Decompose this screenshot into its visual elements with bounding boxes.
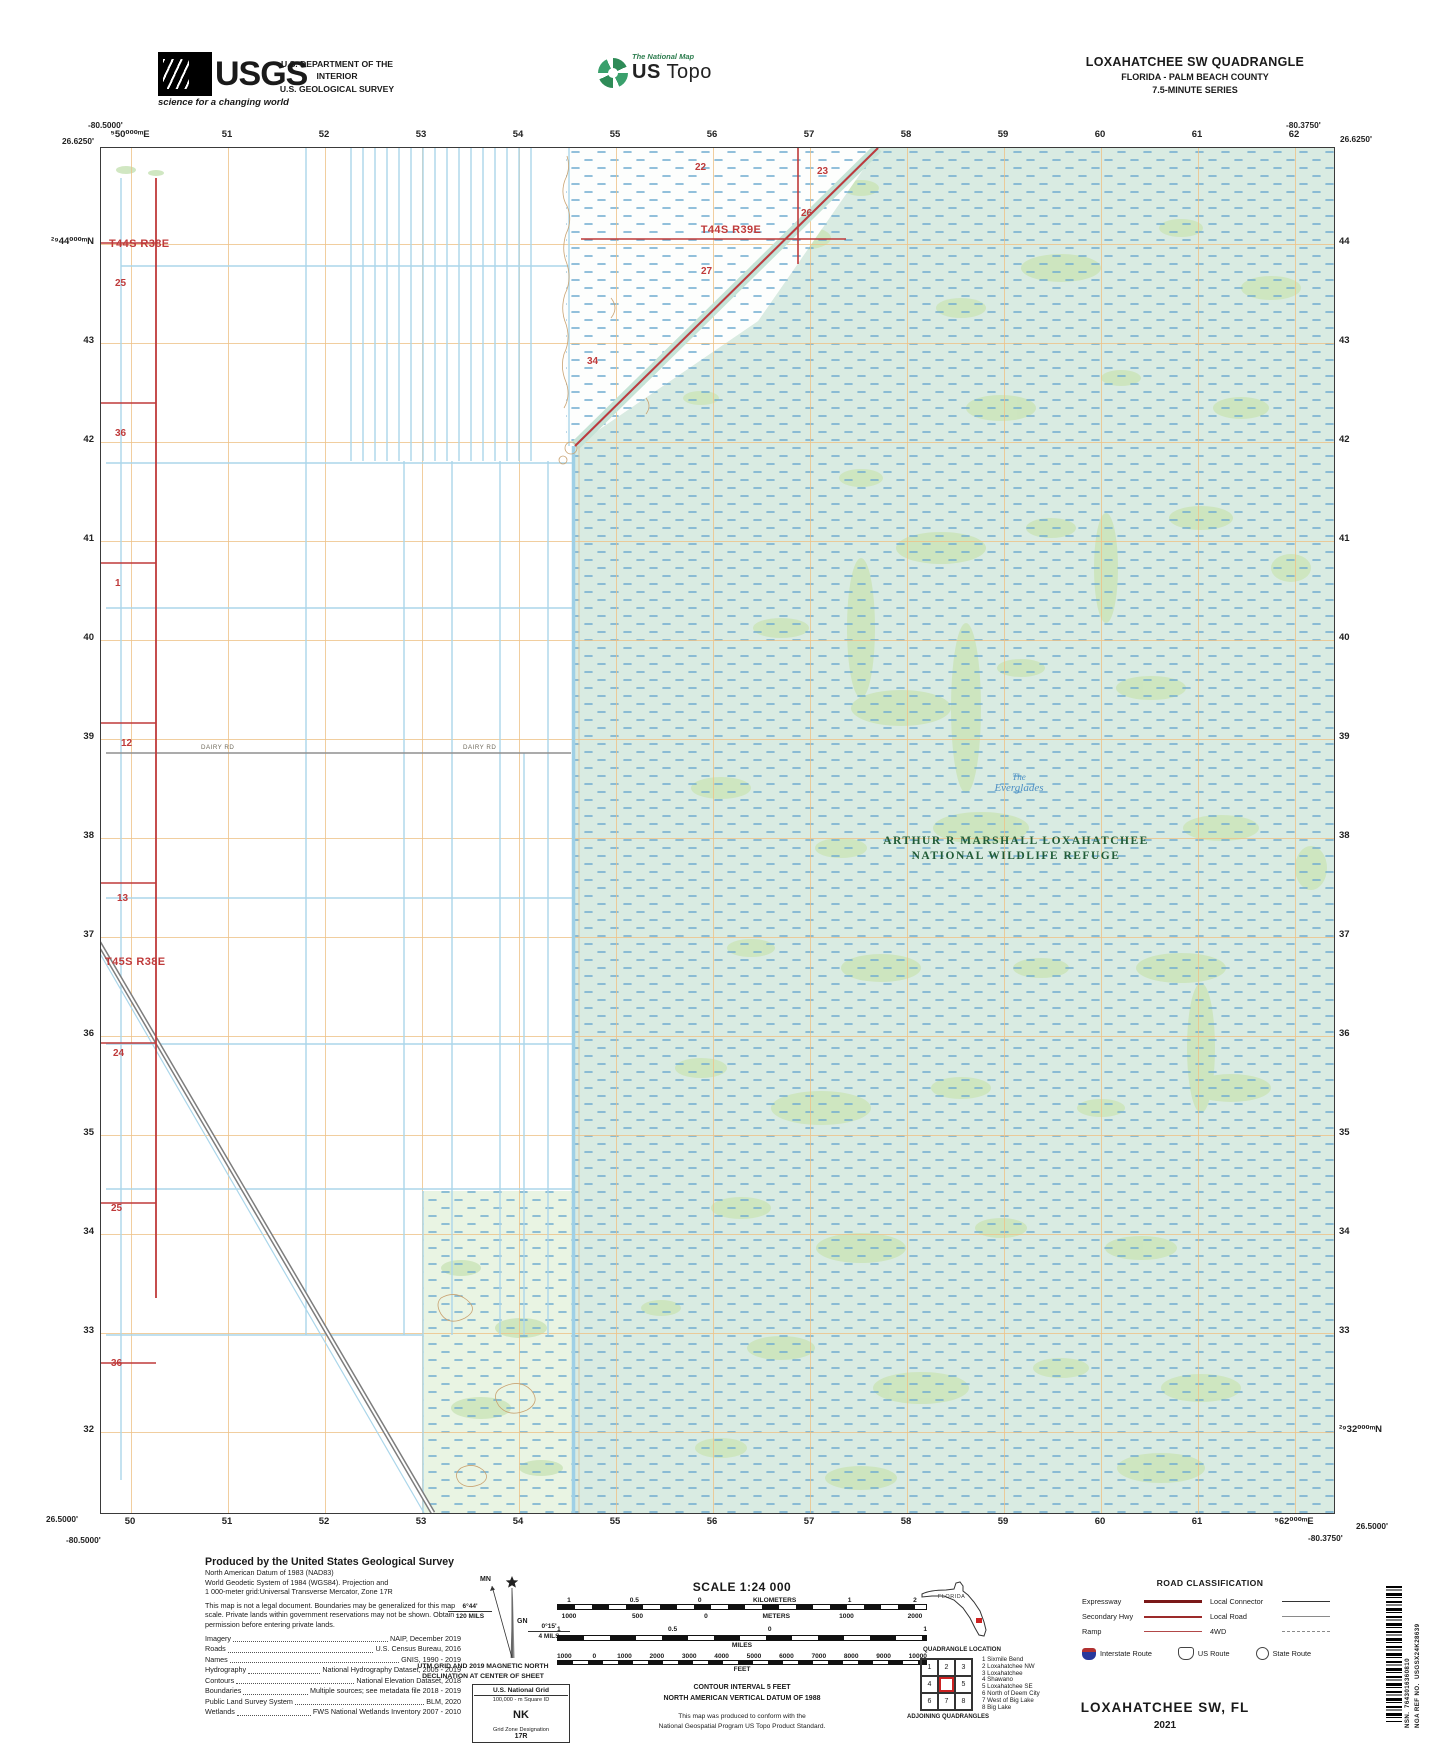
secondary-hwy-line-sample xyxy=(1144,1616,1202,1618)
us-national-grid-box: U.S. National Grid 100,000 - m Square ID… xyxy=(472,1684,570,1743)
grid-label: 38 xyxy=(22,830,94,844)
section-number: 36 xyxy=(111,1358,122,1369)
adjoining-cell: 6 xyxy=(921,1693,938,1710)
grid-label: 34 xyxy=(22,1226,94,1240)
usgs-topo-sheet: USGS science for a changing world U.S. D… xyxy=(0,0,1445,1746)
grid-label: 60 xyxy=(1060,129,1140,140)
us-topo-topo: Topo xyxy=(661,61,712,83)
grid-label: 43 xyxy=(22,335,94,349)
kilometer-scale-bar xyxy=(557,1604,927,1610)
grid-label: ²⁹32⁰⁰⁰ᵐN xyxy=(1339,1424,1419,1438)
grid-labels-left: ²⁹44⁰⁰⁰ᵐN434241403938373635343332 xyxy=(22,236,94,1438)
adjoining-quadrangle-grid: 12345678 xyxy=(920,1658,973,1711)
section-number: 22 xyxy=(695,162,706,173)
grid-label: 39 xyxy=(22,731,94,745)
nsn-number: NSN.7643016360810 xyxy=(1404,1578,1411,1728)
section-number: 34 xyxy=(587,356,598,367)
declination-caption: UTM GRID AND 2019 MAGNETIC NORTH DECLINA… xyxy=(398,1662,568,1681)
adjoining-cell xyxy=(938,1676,955,1693)
meter-labels: 10005000METERS10002000 xyxy=(557,1613,927,1620)
grid-label: 55 xyxy=(575,1516,655,1527)
grid-label: 32 xyxy=(22,1424,94,1438)
grid-labels-top: ⁵50⁰⁰⁰ᵐE515253545556575859606162 xyxy=(90,129,1334,140)
national-map-small-label: The National Map xyxy=(632,52,712,61)
grid-label: 33 xyxy=(1339,1325,1419,1339)
grid-label: 56 xyxy=(672,129,752,140)
adjoining-cell: 3 xyxy=(955,1659,972,1676)
grid-label: 52 xyxy=(284,1516,364,1527)
grid-label: 40 xyxy=(1339,632,1419,646)
adjoining-cell: 1 xyxy=(921,1659,938,1676)
township-label: T44S R38E xyxy=(109,238,169,250)
us-topo-label: US Topo xyxy=(632,61,712,84)
adjoining-cell: 2 xyxy=(938,1659,955,1676)
grid-label: 62 xyxy=(1254,129,1334,140)
department-line1: U.S. DEPARTMENT OF THE INTERIOR xyxy=(262,58,412,83)
square-id: NK xyxy=(474,1709,568,1721)
magnetic-north-label: MN xyxy=(480,1576,491,1583)
grid-label: 42 xyxy=(22,434,94,448)
road-label: DAIRY RD xyxy=(201,744,234,751)
road-classification-legend: ROAD CLASSIFICATION Expressway Secondary… xyxy=(1082,1578,1338,1660)
grid-label: 38 xyxy=(1339,830,1419,844)
grid-labels-bottom: 505152535455565758596061⁵62⁰⁰⁰ᵐE xyxy=(90,1516,1334,1527)
adjoining-cell: 7 xyxy=(938,1693,955,1710)
grid-label: 50 xyxy=(90,1516,170,1527)
feet-scale-bar xyxy=(557,1660,927,1665)
grid-label: 51 xyxy=(187,1516,267,1527)
quad-title: LOXAHATCHEE SW QUADRANGLE xyxy=(1000,55,1390,69)
grid-label: 58 xyxy=(866,1516,946,1527)
grid-label: 59 xyxy=(963,129,1043,140)
credits-title: Produced by the United States Geological… xyxy=(205,1556,461,1568)
corner-top-right-lat: 26.6250' xyxy=(1340,134,1372,144)
grid-label: 37 xyxy=(22,929,94,943)
grid-label: 55 xyxy=(575,129,655,140)
section-number: 36 xyxy=(115,428,126,439)
department-line2: U.S. GEOLOGICAL SURVEY xyxy=(262,83,412,95)
florida-outline-map xyxy=(918,1578,1006,1642)
credits-disclaimer: This map is not a legal document. Bounda… xyxy=(205,1601,461,1630)
ramp-line-sample xyxy=(1144,1631,1202,1632)
declination-diagram: MN GN 6°44' 120 MILS 0°15' 4 MILS xyxy=(452,1574,572,1664)
grid-label: 44 xyxy=(1339,236,1419,250)
grid-label: ²⁹44⁰⁰⁰ᵐN xyxy=(22,236,94,250)
grid-label: 36 xyxy=(1339,1028,1419,1042)
grid-label: 53 xyxy=(381,129,461,140)
mile-scale-bar xyxy=(557,1635,927,1641)
grid-label: 61 xyxy=(1157,1516,1237,1527)
data-source-row: RoadsU.S. Census Bureau, 2016 xyxy=(205,1644,461,1654)
usgs-wave-icon xyxy=(158,52,212,96)
quad-series: 7.5-MINUTE SERIES xyxy=(1000,85,1390,95)
data-source-row: WetlandsFWS National Wetlands Inventory … xyxy=(205,1707,461,1717)
grid-zone: 17R xyxy=(474,1733,568,1740)
sheet-title-block: LOXAHATCHEE SW, FL 2021 xyxy=(1030,1700,1300,1731)
contour-interval-note: CONTOUR INTERVAL 5 FEET NORTH AMERICAN V… xyxy=(557,1683,927,1704)
township-label: T45S R38E xyxy=(105,956,165,968)
grid-label: 57 xyxy=(769,1516,849,1527)
adjoining-cell: 8 xyxy=(955,1693,972,1710)
grid-label: ⁵50⁰⁰⁰ᵐE xyxy=(90,129,170,140)
grid-label: 42 xyxy=(1339,434,1419,448)
map-area: T44S R38E T44S R39E T45S R38E 25 36 1 12… xyxy=(100,147,1335,1514)
adjoining-cell: 4 xyxy=(921,1676,938,1693)
department-heading: U.S. DEPARTMENT OF THE INTERIOR U.S. GEO… xyxy=(262,58,412,95)
section-number: 25 xyxy=(111,1203,122,1214)
grid-label: 57 xyxy=(769,129,849,140)
grid-label: ⁵62⁰⁰⁰ᵐE xyxy=(1254,1516,1334,1527)
standard-note: This map was produced to conform with th… xyxy=(557,1712,927,1731)
grid-label: 54 xyxy=(478,129,558,140)
township-label: T44S R39E xyxy=(661,224,801,236)
national-map-logo: The National Map US Topo xyxy=(598,52,712,88)
grid-label: 36 xyxy=(22,1028,94,1042)
section-number: 1 xyxy=(115,578,121,589)
section-number: 12 xyxy=(121,738,132,749)
barcode xyxy=(1386,1586,1402,1722)
local-connector-line-sample xyxy=(1282,1601,1330,1602)
grid-label: 34 xyxy=(1339,1226,1419,1240)
refuge-name-label: ARTHUR R MARSHALL LOXAHATCHEE NATIONAL W… xyxy=(846,834,1186,864)
map-canvas xyxy=(101,148,1334,1513)
grid-label: 40 xyxy=(22,632,94,646)
grid-label: 33 xyxy=(22,1325,94,1339)
us-topo-us: US xyxy=(632,61,661,83)
grid-label: 35 xyxy=(22,1127,94,1141)
grid-labels-right: 444342414039383736353433²⁹32⁰⁰⁰ᵐN xyxy=(1339,236,1419,1438)
section-number: 23 xyxy=(817,166,828,177)
section-number: 26 xyxy=(801,208,812,219)
4wd-line-sample xyxy=(1282,1631,1330,1632)
grid-label: 59 xyxy=(963,1516,1043,1527)
corner-bottom-right-lat: 26.5000' xyxy=(1356,1521,1388,1531)
corner-top-left-lat: 26.6250' xyxy=(46,136,94,146)
grid-north-label: GN xyxy=(517,1618,528,1625)
data-source-row: BoundariesMultiple sources; see metadata… xyxy=(205,1686,461,1696)
production-credits: Produced by the United States Geological… xyxy=(205,1556,461,1718)
miles-labels: 1 0.5 0 1 xyxy=(557,1626,927,1635)
quadrangle-title-block: LOXAHATCHEE SW QUADRANGLE FLORIDA - PALM… xyxy=(1000,55,1390,95)
grid-label: 53 xyxy=(381,1516,461,1527)
state-label: FLORIDA xyxy=(938,1594,965,1600)
quadrangle-location-caption: QUADRANGLE LOCATION xyxy=(902,1646,1022,1653)
grid-label: 43 xyxy=(1339,335,1419,349)
grid-label: 39 xyxy=(1339,731,1419,745)
grid-label: 41 xyxy=(1339,533,1419,547)
section-number: 24 xyxy=(113,1048,124,1059)
grid-label: 61 xyxy=(1157,129,1237,140)
section-number: 13 xyxy=(117,893,128,904)
adjoining-caption: ADJOINING QUADRANGLES xyxy=(896,1714,1000,1720)
grid-label: 54 xyxy=(478,1516,558,1527)
scale-title: SCALE 1:24 000 xyxy=(557,1580,927,1594)
data-source-row: ImageryNAIP, December 2019 xyxy=(205,1634,461,1644)
state-route-shield-icon xyxy=(1256,1647,1269,1660)
grid-label: 35 xyxy=(1339,1127,1419,1141)
us-route-shield-icon xyxy=(1178,1647,1194,1660)
utm-grid-horizontal xyxy=(101,148,1334,1513)
section-number: 25 xyxy=(115,278,126,289)
adjoining-cell: 5 xyxy=(955,1676,972,1693)
feet-labels: 1000010002000300040005000600070008000900… xyxy=(557,1653,927,1660)
grid-label: 60 xyxy=(1060,1516,1140,1527)
section-number: 27 xyxy=(701,266,712,277)
everglades-label: The Everglades xyxy=(959,772,1079,794)
usgs-tagline: science for a changing world xyxy=(158,97,358,108)
interstate-shield-icon xyxy=(1082,1648,1096,1660)
sheet-year: 2021 xyxy=(1030,1720,1300,1731)
quad-subtitle: FLORIDA - PALM BEACH COUNTY xyxy=(1000,72,1390,82)
corner-bottom-right-lon: -80.3750' xyxy=(1308,1533,1343,1543)
grid-label: 37 xyxy=(1339,929,1419,943)
local-road-line-sample xyxy=(1282,1616,1330,1617)
route-shields: Interstate Route US Route State Route xyxy=(1082,1647,1338,1660)
sheet-title: LOXAHATCHEE SW, FL xyxy=(1030,1700,1300,1715)
data-source-row: Public Land Survey SystemBLM, 2020 xyxy=(205,1697,461,1707)
grid-label: 58 xyxy=(866,129,946,140)
national-map-icon xyxy=(598,58,628,88)
quad-location-marker xyxy=(976,1618,982,1623)
corner-bottom-left-lon: -80.5000' xyxy=(66,1535,101,1545)
grid-label: 52 xyxy=(284,129,364,140)
nga-ref-number: NGA REF NO.USGSX24K28639 xyxy=(1414,1578,1421,1728)
road-label: DAIRY RD xyxy=(463,744,496,751)
corner-bottom-left-lat: 26.5000' xyxy=(46,1514,78,1524)
grid-label: 51 xyxy=(187,129,267,140)
grid-label: 41 xyxy=(22,533,94,547)
grid-label: 56 xyxy=(672,1516,752,1527)
expressway-line-sample xyxy=(1144,1600,1202,1603)
scale-block: SCALE 1:24 000 10.50KILOMETERS12 1000500… xyxy=(557,1580,927,1731)
km-labels: 10.50KILOMETERS12 xyxy=(557,1597,927,1604)
mn-declination-value: 6°44' 120 MILS xyxy=(448,1602,492,1621)
